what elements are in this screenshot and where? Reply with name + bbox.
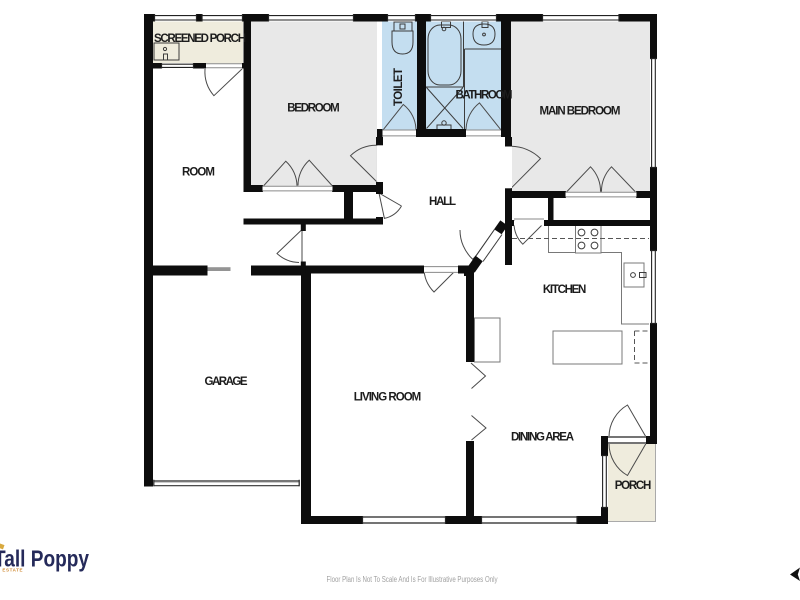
svg-text:Floor Plan Is Not To Scale And: Floor Plan Is Not To Scale And Is For Il…: [327, 575, 498, 584]
svg-text:SCREENED PORCH: SCREENED PORCH: [154, 33, 246, 45]
svg-text:ROOM: ROOM: [182, 166, 215, 178]
svg-text:PORCH: PORCH: [615, 480, 652, 492]
svg-text:GARAGE: GARAGE: [205, 376, 248, 388]
svg-text:BEDROOM: BEDROOM: [287, 103, 340, 115]
svg-text:REAL ESTATE: REAL ESTATE: [0, 568, 23, 573]
svg-text:LIVING ROOM: LIVING ROOM: [354, 392, 422, 404]
svg-text:MAIN BEDROOM: MAIN BEDROOM: [540, 106, 621, 118]
svg-text:DINING AREA: DINING AREA: [511, 432, 574, 444]
svg-text:BATHROOM: BATHROOM: [456, 89, 513, 101]
svg-text:KITCHEN: KITCHEN: [543, 284, 587, 296]
svg-text:HALL: HALL: [429, 196, 456, 208]
svg-text:TOILET: TOILET: [393, 68, 405, 106]
